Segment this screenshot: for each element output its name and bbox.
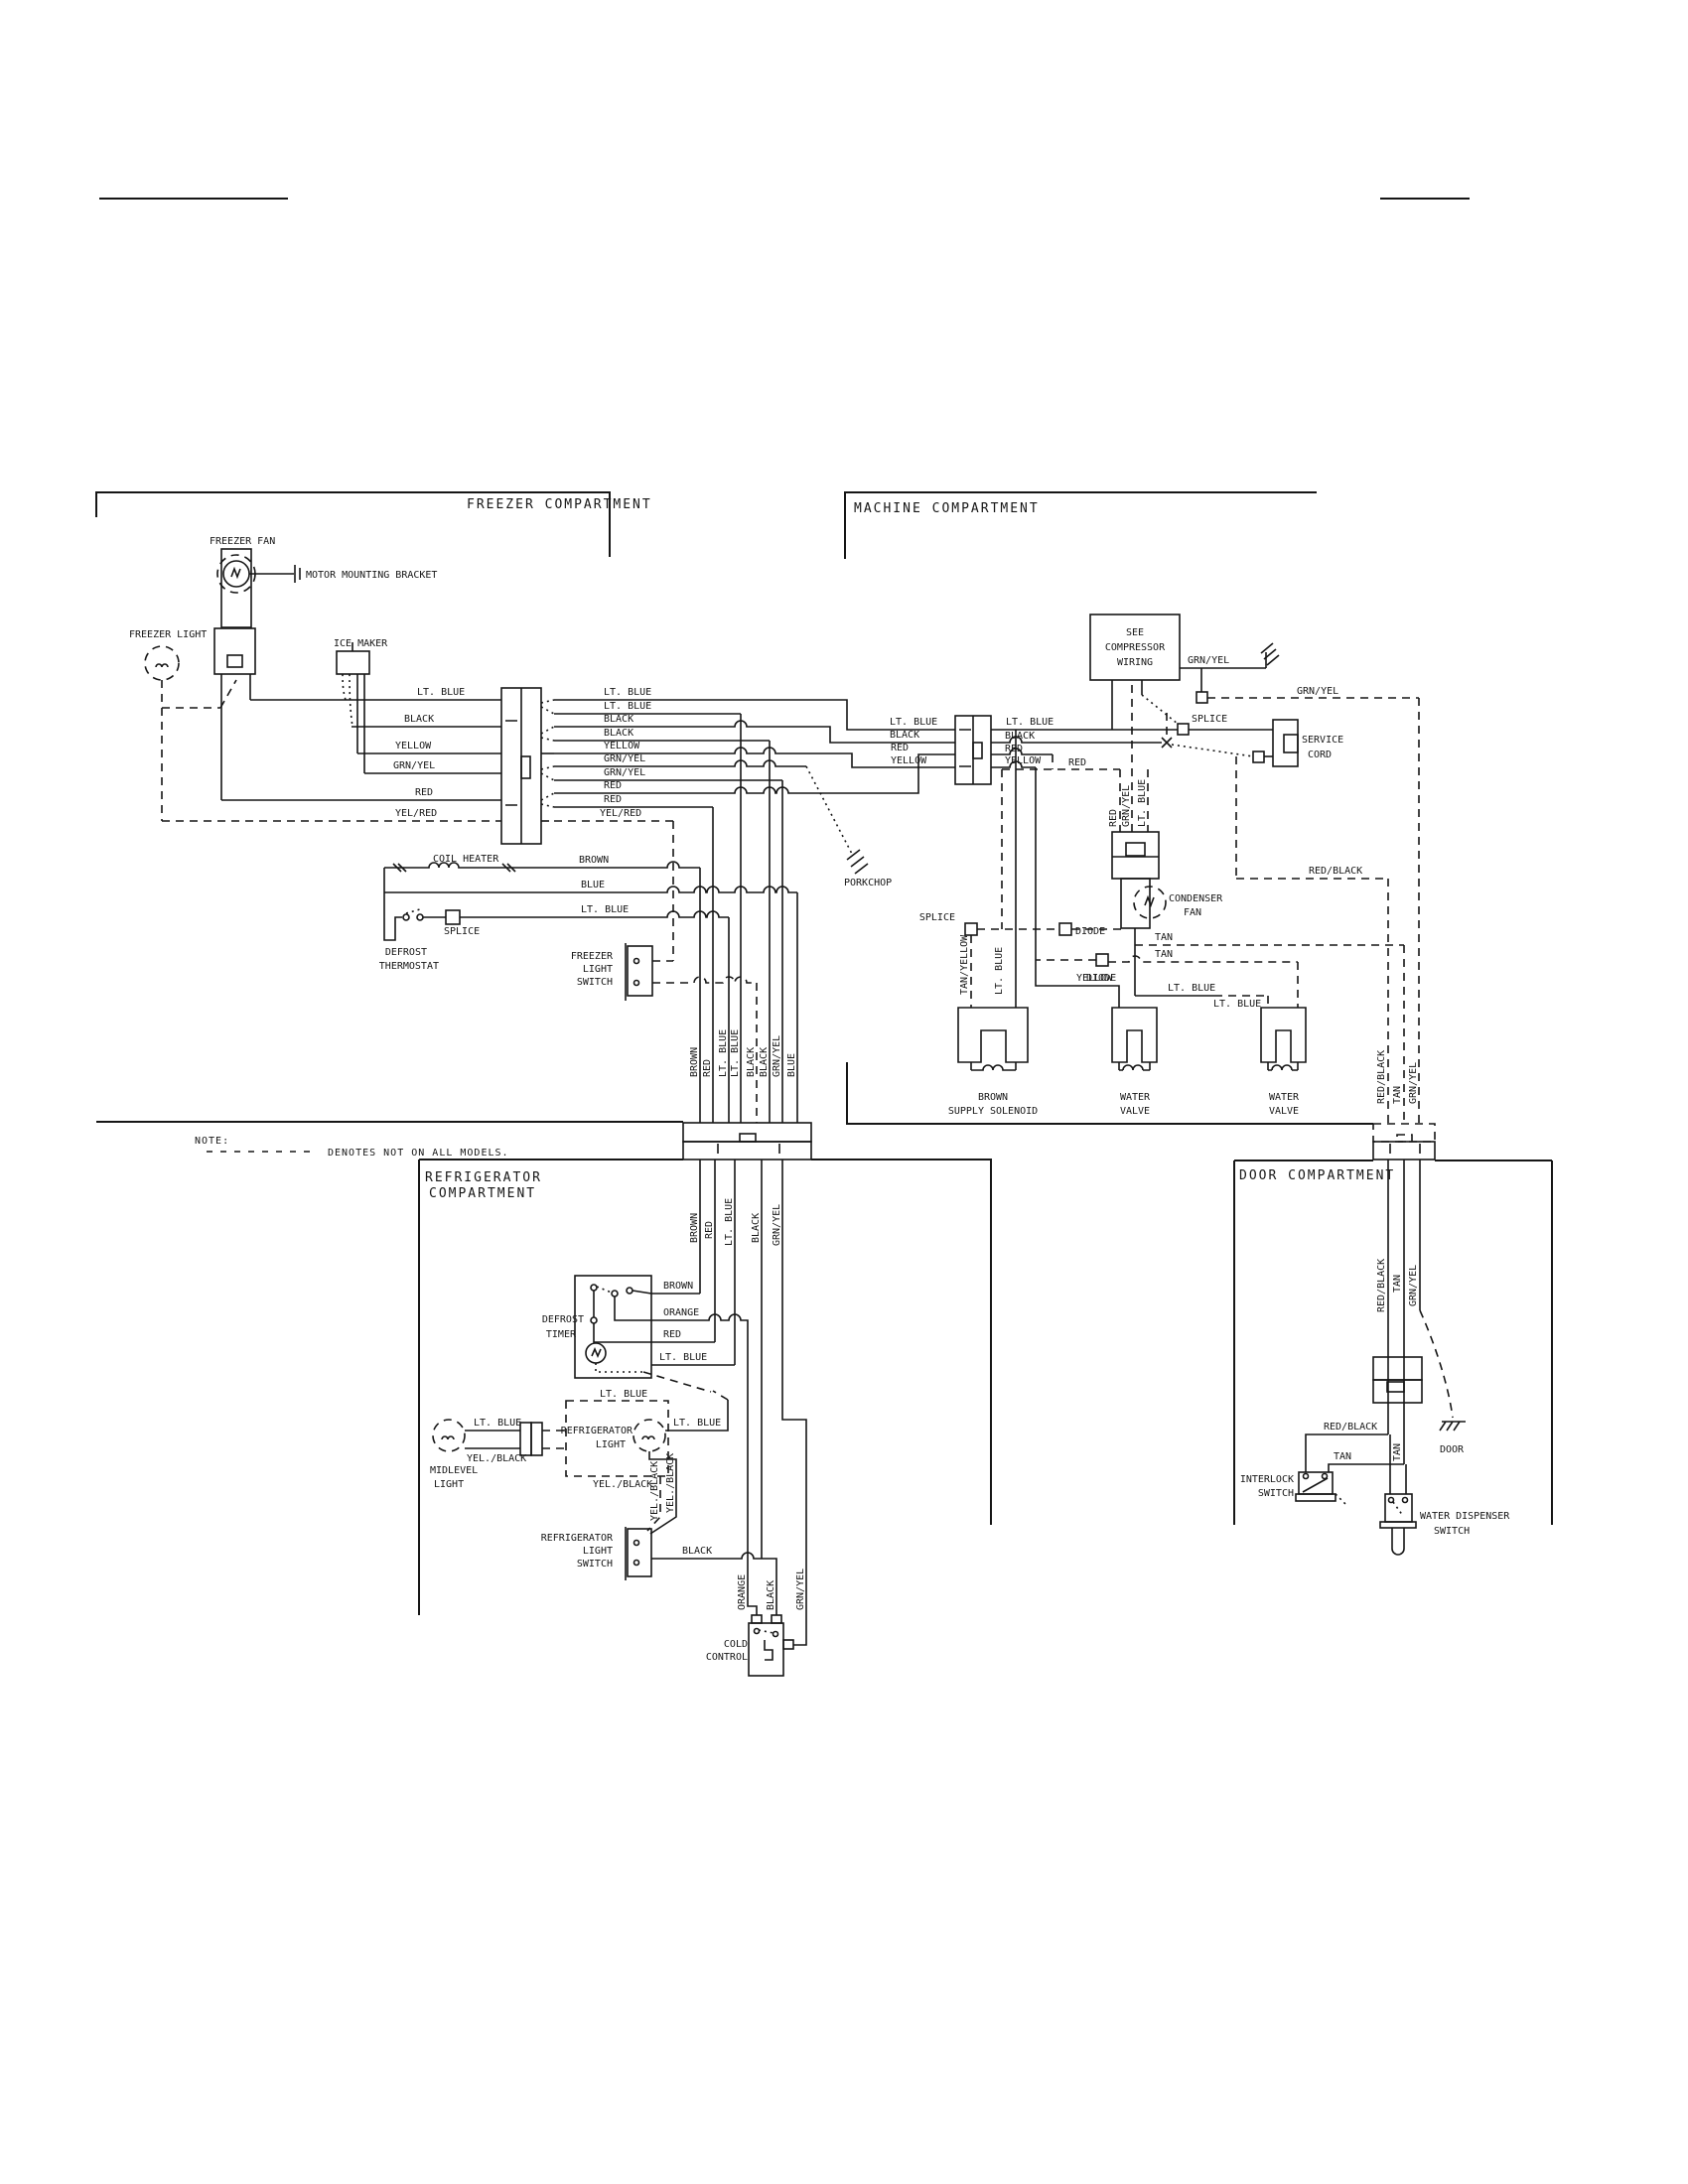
wire-label-lt-blue: LT. BLUE: [474, 1418, 521, 1429]
refrigerator-compartment-title-2: COMPARTMENT: [429, 1186, 536, 1201]
refrigerator-wiring-diagram: FREEZER COMPARTMENT MACHINE COMPARTMENT …: [0, 0, 1688, 2184]
wire-label-lt-blue: LT. BLUE: [604, 701, 651, 712]
wire-label-red-black: RED/BLACK: [1309, 866, 1362, 877]
wire-label-lt-blue: LT. BLUE: [718, 1029, 729, 1077]
refrigerator-compartment-title-1: REFRIGERATOR: [425, 1170, 542, 1185]
wire-label-black: BLACK: [404, 714, 434, 725]
coil-heater-circuit: COIL HEATER BROWN BLUE LT. BLUE SPLICE D…: [379, 854, 797, 1123]
defrost-thermostat-label-1: DEFROST: [385, 947, 427, 958]
midlevel-light-label-1: MIDLEVEL: [430, 1465, 478, 1476]
wire-label-grn-yel: GRN/YEL: [1408, 1062, 1419, 1104]
compressor-wiring-box: SEE COMPRESSOR WIRING: [1090, 614, 1180, 832]
wire-label-lt-blue: LT. BLUE: [994, 947, 1005, 995]
wire-label-black: BLACK: [604, 714, 633, 725]
condenser-fan-label-2: FAN: [1184, 907, 1201, 918]
water-valve-2: WATER VALVE: [1261, 1008, 1306, 1117]
diode-label: DIODE: [1075, 926, 1105, 937]
wire-label-lt-blue: LT. BLUE: [417, 687, 465, 698]
cold-control: ORANGE BLACK GRN/YEL COLD CONTROL: [706, 1569, 806, 1676]
note: NOTE: DENOTES NOT ON ALL MODELS.: [195, 1136, 509, 1159]
svg-text:ICE MAKER: ICE MAKER: [334, 638, 388, 649]
wire-label-lt-blue: LT. BLUE: [890, 717, 937, 728]
wire-label-red-black: RED/BLACK: [1376, 1050, 1387, 1104]
wire-label-tan: TAN: [1392, 1275, 1403, 1293]
wire-label-tan: TAN: [1392, 1086, 1403, 1104]
freezer-light-switch-label-1: FREEZER: [571, 951, 614, 962]
wire-label-lt-blue: LT. BLUE: [1006, 717, 1054, 728]
water-valve-label-1: WATER: [1269, 1092, 1300, 1103]
freezer-light-switch-label-3: SWITCH: [577, 977, 613, 988]
water-valve-1: WATER VALVE: [1112, 1008, 1157, 1117]
supply-solenoid: BROWN SUPPLY SOLENOID: [948, 1008, 1038, 1117]
wire-label-blue: BLUE: [581, 880, 605, 890]
compressor-label-3: WIRING: [1117, 657, 1153, 668]
refrigerator-light-switch-label-3: SWITCH: [577, 1559, 613, 1570]
wire-label-red: RED: [663, 1329, 681, 1340]
wire-label-lt-blue: LT. BLUE: [604, 687, 651, 698]
door-ground-label: DOOR: [1440, 1444, 1465, 1455]
central-connector: [683, 1123, 811, 1160]
wire-label-red: RED: [604, 780, 622, 791]
wire-label-tan: TAN: [1155, 949, 1173, 960]
compressor-label-1: SEE: [1126, 627, 1144, 638]
defrost-timer-label-2: TIMER: [546, 1329, 577, 1340]
wire-label-red: RED: [891, 743, 909, 753]
water-valve-label-2: VALVE: [1120, 1106, 1150, 1117]
freezer-fan: FREEZER FAN MOTOR MOUNTING BRACKET: [210, 536, 437, 674]
wire-label-lt-blue: LT. BLUE: [581, 904, 629, 915]
freezer-light: FREEZER LIGHT: [129, 629, 236, 821]
service-cord: SERVICE CORD: [1273, 720, 1343, 766]
wire-label-red: RED: [704, 1221, 715, 1239]
service-cord-label-1: SERVICE: [1302, 735, 1343, 746]
porkchop-ground: PORKCHOP: [806, 766, 892, 888]
wire-label-grn-yel: GRN/YEL: [795, 1569, 806, 1610]
door-connector: [1373, 1124, 1435, 1160]
wire-label-lt-blue: LT. BLUE: [730, 1029, 741, 1077]
machine-connector: [955, 716, 991, 784]
wire-label-grn-yel: GRN/YEL: [1408, 1265, 1419, 1306]
wire-label-yel-black: YEL./BLACK: [649, 1461, 660, 1521]
wire-label-brown: BROWN: [689, 1047, 700, 1077]
wire-label-orange: ORANGE: [737, 1574, 748, 1610]
splice-label: SPLICE: [1192, 714, 1227, 725]
wire-label-lt-blue: LT. BLUE: [1168, 983, 1215, 994]
splice-label: SPLICE: [919, 912, 955, 923]
note-label: NOTE:: [195, 1136, 229, 1147]
freezer-light-switch-label-2: LIGHT: [583, 964, 613, 975]
wire-label-yel-black: YEL./BLACK: [665, 1453, 676, 1513]
supply-solenoid-label-1: BROWN: [978, 1092, 1008, 1103]
wire-label-lt-blue: LT. BLUE: [659, 1352, 707, 1363]
wire-label-red: RED: [702, 1059, 713, 1077]
machine-harness-labels: LT. BLUE BLACK RED YELLOW LT. BLUE BLACK…: [890, 717, 1054, 766]
wire-label-yellow: YELLOW: [604, 741, 640, 751]
refrigerator-light-label-2: LIGHT: [596, 1439, 626, 1450]
machine-compartment-title: MACHINE COMPARTMENT: [854, 501, 1040, 516]
wire-label-yel-black: YEL./BLACK: [593, 1479, 652, 1490]
wire-label-lt-blue: LT. BLUE: [1213, 999, 1261, 1010]
wire-label-red-black: RED/BLACK: [1376, 1259, 1387, 1312]
defrost-thermostat-label-2: THERMOSTAT: [379, 961, 439, 972]
wire-label-grn-yel: GRN/YEL: [1121, 785, 1132, 827]
wire-label-grn-yel: GRN/YEL: [772, 1204, 782, 1246]
wire-label-black: BLACK: [759, 1047, 770, 1077]
wire-label-grn-yel: GRN/YEL: [772, 1035, 782, 1077]
wire-label-lt-blue: LT. BLUE: [673, 1418, 721, 1429]
wire-label-blue: BLUE: [786, 1053, 797, 1077]
door-feed-wires: RED/BLACK RED/BLACK TAN GRN/YEL: [1236, 756, 1419, 1124]
defrost-timer: DEFROST TIMER BROWN ORANGE RED LT. BLUE: [542, 1276, 757, 1615]
wire-label-black: BLACK: [766, 1580, 776, 1610]
splice-label: SPLICE: [444, 926, 480, 937]
wire-label-tan: TAN: [1155, 932, 1173, 943]
compartment-borders: [96, 492, 1552, 1615]
water-valve-label-1: WATER: [1120, 1092, 1151, 1103]
diode-label: DIODE: [1086, 973, 1116, 984]
wire-label-yel-red: YEL/RED: [395, 808, 437, 819]
cold-control-label-2: CONTROL: [706, 1652, 748, 1663]
wire-label-orange: ORANGE: [663, 1307, 699, 1318]
door-wires: RED/BLACK TAN GRN/YEL DOOR RED/BLACK TAN…: [1306, 1160, 1466, 1494]
wire-label-grn-yel: GRN/YEL: [1188, 655, 1229, 666]
wire-label-red: RED: [1068, 757, 1086, 768]
svg-text:FREEZER FAN: FREEZER FAN: [210, 536, 275, 547]
wire-label-red: RED: [1108, 809, 1119, 827]
central-harness-labels-top: BROWN RED LT. BLUE LT. BLUE BLACK BLACK …: [689, 1029, 797, 1077]
wire-label-lt-blue: LT. BLUE: [724, 1198, 735, 1246]
wire-label-tan: TAN: [1392, 1443, 1403, 1461]
wire-label-lt-blue: LT. BLUE: [1137, 779, 1148, 827]
interlock-switch: INTERLOCK SWITCH: [1240, 1472, 1345, 1504]
interlock-switch-label-2: SWITCH: [1258, 1488, 1294, 1499]
wire-label-red: RED: [604, 794, 622, 805]
refrigerator-light-switch-label-1: REFRIGERATOR: [541, 1533, 614, 1544]
wire-label-yellow: YELLOW: [891, 755, 927, 766]
supply-solenoid-label-2: SUPPLY SOLENOID: [948, 1106, 1038, 1117]
wire-label-black: BLACK: [890, 730, 919, 741]
refrigerator-light-switch-label-2: LIGHT: [583, 1546, 613, 1557]
compressor-label-2: COMPRESSOR: [1105, 642, 1166, 653]
interlock-switch-label-1: INTERLOCK: [1240, 1474, 1294, 1485]
condenser-fan-label-1: CONDENSER: [1169, 893, 1223, 904]
water-dispenser-switch: WATER DISPENSER SWITCH: [1380, 1494, 1510, 1555]
wire-label-brown: BROWN: [689, 1213, 700, 1243]
relay-condenser-fan: RED GRN/YEL LT. BLUE CONDENSER FAN: [1108, 779, 1223, 996]
wire-label-red-black: RED/BLACK: [1324, 1422, 1377, 1433]
svg-text:FREEZER LIGHT: FREEZER LIGHT: [129, 629, 207, 640]
wire-label-tan-yellow: TAN/YELLOW: [959, 934, 970, 995]
service-cord-label-2: CORD: [1308, 750, 1332, 760]
wire-label-black: BLACK: [1005, 731, 1035, 742]
water-dispenser-switch-label-1: WATER DISPENSER: [1420, 1511, 1510, 1522]
wiring-diagram-page: FREEZER COMPARTMENT MACHINE COMPARTMENT …: [0, 0, 1688, 2184]
wire-label-brown: BROWN: [579, 855, 609, 866]
midlevel-light-label-2: LIGHT: [434, 1479, 464, 1490]
freezer-connector: [501, 688, 554, 844]
water-dispenser-switch-label-2: SWITCH: [1434, 1526, 1470, 1537]
wire-label-yel-black: YEL./BLACK: [467, 1453, 526, 1464]
diodes-splice: SPLICE DIODE DIODE TAN TAN TAN/YELLOW LT…: [919, 912, 1404, 1010]
defrost-timer-label-1: DEFROST: [542, 1314, 584, 1325]
wire-label-grn-yel: GRN/YEL: [393, 760, 435, 771]
wire-label-black: BLACK: [604, 728, 633, 739]
refrigerator-light: LT. BLUE REFRIGERATOR LIGHT LT. BLUE YEL…: [561, 1389, 728, 1534]
freezer-compartment-title: FREEZER COMPARTMENT: [467, 497, 652, 512]
wire-label-red: RED: [415, 787, 433, 798]
wire-label-yel-red: YEL/RED: [600, 808, 641, 819]
wire-label-brown: BROWN: [663, 1281, 693, 1292]
wire-label-grn-yel: GRN/YEL: [604, 753, 645, 764]
porkchop-label: PORKCHOP: [844, 878, 892, 888]
wire-label-black: BLACK: [746, 1047, 757, 1077]
wire-label-black: BLACK: [751, 1213, 762, 1243]
wire-label-black: BLACK: [682, 1546, 712, 1557]
cold-control-label-1: COLD: [724, 1639, 748, 1650]
freezer-harness-left: LT. BLUE BLACK YELLOW GRN/YEL RED YEL/RE…: [162, 674, 501, 821]
midlevel-light: MIDLEVEL LIGHT LT. BLUE YEL./BLACK: [430, 1418, 566, 1490]
motor-mounting-bracket-label: MOTOR MOUNTING BRACKET: [306, 570, 437, 581]
wire-label-grn-yel: GRN/YEL: [1297, 686, 1338, 697]
door-compartment-title: DOOR COMPARTMENT: [1239, 1168, 1395, 1183]
water-valve-label-2: VALVE: [1269, 1106, 1299, 1117]
wire-label-lt-blue: LT. BLUE: [600, 1389, 647, 1400]
note-legend: DENOTES NOT ON ALL MODELS.: [328, 1148, 509, 1159]
wire-label-tan: TAN: [1334, 1451, 1351, 1462]
wire-label-yellow: YELLOW: [395, 741, 432, 751]
refrigerator-light-label-1: REFRIGERATOR: [561, 1426, 633, 1436]
wire-label-grn-yel: GRN/YEL: [604, 767, 645, 778]
